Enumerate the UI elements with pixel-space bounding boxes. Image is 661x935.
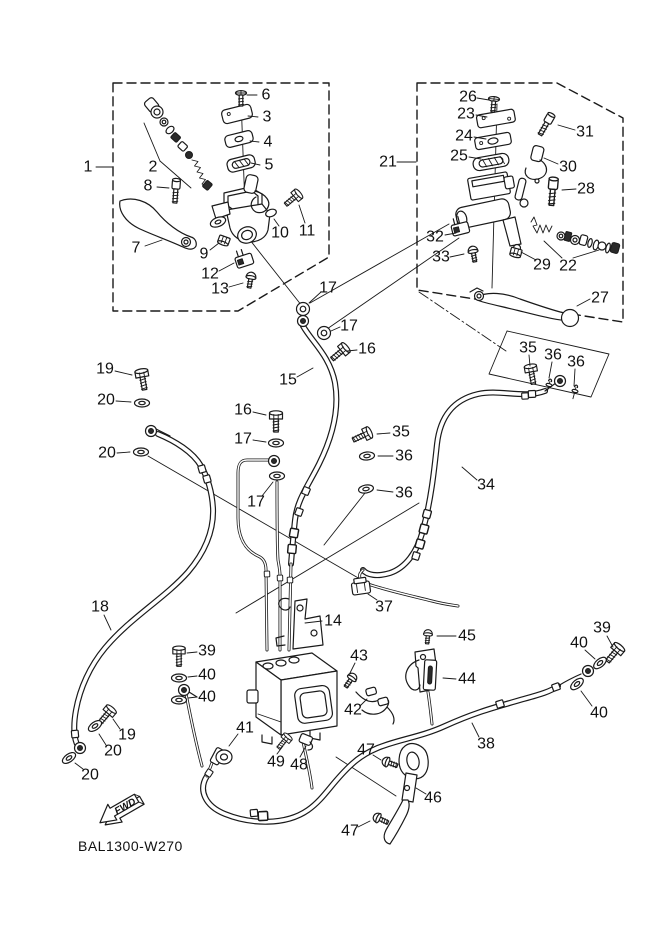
bolt-16-a bbox=[328, 341, 351, 363]
callout-41: 41 bbox=[236, 720, 254, 737]
banjo-hose15-top bbox=[298, 316, 309, 327]
callout-42: 42 bbox=[344, 702, 362, 719]
parts-diagram-page: FWD BAL1300-W270 12345678910111213172122… bbox=[0, 0, 661, 935]
hose-collar bbox=[522, 393, 529, 399]
abs-hydraulic-unit bbox=[247, 653, 337, 744]
callout-19: 19 bbox=[118, 727, 136, 744]
clamp-37 bbox=[351, 577, 371, 595]
callout-35: 35 bbox=[519, 340, 537, 357]
callout-45: 45 bbox=[458, 628, 476, 645]
clamp-30 bbox=[525, 145, 546, 183]
callout-1: 1 bbox=[84, 159, 93, 176]
callout-8: 8 bbox=[144, 178, 153, 195]
banjo-hose18-top bbox=[146, 426, 157, 437]
cap-plate-24 bbox=[474, 132, 512, 150]
leader-line-20 bbox=[117, 452, 130, 453]
washer-20-c bbox=[87, 718, 104, 733]
leader-line-40 bbox=[188, 676, 197, 677]
screw-33 bbox=[467, 245, 480, 262]
banjo-hose18-end bbox=[75, 743, 86, 754]
hose-collar bbox=[264, 571, 270, 577]
leader-line-34 bbox=[462, 467, 477, 480]
leader-line-11 bbox=[299, 205, 305, 223]
screw-43 bbox=[342, 671, 359, 690]
brake-hose-15 bbox=[291, 326, 336, 564]
washer-17-d bbox=[270, 472, 285, 480]
bolt-8 bbox=[171, 178, 181, 203]
hose-collar bbox=[71, 730, 78, 738]
callout-10: 10 bbox=[271, 225, 289, 242]
hose-collar bbox=[277, 575, 283, 581]
callout-24: 24 bbox=[455, 128, 473, 145]
hose-collar bbox=[203, 475, 212, 484]
hose-collar bbox=[198, 465, 207, 474]
washer-20-a bbox=[135, 399, 150, 407]
construction-line bbox=[148, 456, 360, 579]
callout-5: 5 bbox=[265, 157, 274, 174]
callout-40: 40 bbox=[198, 689, 216, 706]
callout-31: 31 bbox=[576, 124, 594, 141]
bracket-46 bbox=[384, 744, 428, 844]
brake-hose-34 bbox=[360, 383, 556, 606]
callout-43: 43 bbox=[350, 648, 368, 665]
banjo-center-pipe bbox=[269, 456, 280, 467]
callout-17: 17 bbox=[247, 494, 265, 511]
callout-16: 16 bbox=[358, 341, 376, 358]
bolt-16-b bbox=[270, 411, 283, 432]
construction-line bbox=[324, 493, 365, 545]
washer-40-b bbox=[172, 696, 187, 704]
leader-line-35 bbox=[377, 433, 390, 434]
hose-collar bbox=[551, 683, 560, 692]
clamp-48 bbox=[299, 733, 313, 750]
callout-9: 9 bbox=[200, 246, 209, 263]
bracket-44 bbox=[406, 649, 437, 724]
callout-11: 11 bbox=[299, 223, 316, 240]
leader-line-15 bbox=[297, 368, 313, 377]
leader-line-19 bbox=[115, 371, 132, 375]
hose-collar bbox=[287, 577, 293, 583]
callout-15: 15 bbox=[279, 372, 297, 389]
hose-collar bbox=[289, 528, 299, 538]
hose-collar bbox=[412, 552, 421, 561]
leader-line-36 bbox=[574, 369, 575, 386]
clamp-41 bbox=[210, 747, 232, 765]
master-cylinder-body-1 bbox=[209, 187, 270, 246]
piston-kit-22 bbox=[531, 217, 620, 254]
hose-collar bbox=[528, 390, 536, 397]
screw-47-b bbox=[372, 811, 391, 827]
cap-plate-4 bbox=[224, 130, 254, 148]
washer-40-a bbox=[172, 674, 187, 682]
leader-line-13 bbox=[229, 283, 243, 287]
hose-collar bbox=[258, 811, 268, 820]
callout-18: 18 bbox=[91, 599, 109, 616]
washer-17-a bbox=[297, 303, 310, 316]
bolt-19-a bbox=[135, 368, 151, 391]
leader-line-31 bbox=[558, 125, 575, 130]
bolt-31 bbox=[537, 112, 556, 137]
callout-37: 37 bbox=[375, 599, 393, 616]
hose-collar bbox=[250, 809, 258, 816]
leader-line-12 bbox=[219, 263, 234, 271]
reservoir-cap-23 bbox=[476, 109, 516, 128]
callout-22: 22 bbox=[559, 258, 577, 275]
callout-2: 2 bbox=[149, 159, 158, 176]
callout-17: 17 bbox=[340, 318, 358, 335]
callout-44: 44 bbox=[458, 671, 476, 688]
callout-17: 17 bbox=[319, 280, 337, 297]
callout-33: 33 bbox=[432, 249, 450, 266]
callout-49: 49 bbox=[267, 754, 285, 771]
leader-line-16 bbox=[253, 412, 266, 415]
bolt-35-b bbox=[350, 426, 373, 446]
callout-3: 3 bbox=[263, 109, 272, 126]
leader-line-36 bbox=[549, 362, 552, 378]
hose-collar bbox=[419, 524, 429, 534]
washer-40-c bbox=[592, 655, 609, 671]
hose-collar bbox=[422, 509, 431, 519]
callout-26: 26 bbox=[459, 89, 477, 106]
callout-48: 48 bbox=[290, 757, 308, 774]
brake-lever-27 bbox=[470, 288, 579, 327]
callout-40: 40 bbox=[570, 635, 588, 652]
reservoir-body-2 bbox=[467, 171, 515, 200]
reservoir-cap-3 bbox=[221, 104, 253, 125]
construction-line bbox=[544, 241, 562, 258]
callout-6: 6 bbox=[262, 87, 271, 104]
leader-line-28 bbox=[562, 189, 576, 190]
banjo-40 bbox=[179, 685, 190, 696]
leader-line-27 bbox=[577, 299, 590, 306]
callout-36: 36 bbox=[395, 485, 413, 502]
callout-29: 29 bbox=[533, 257, 551, 274]
screw-47-a bbox=[381, 756, 399, 771]
washer-20-b bbox=[134, 448, 149, 456]
leader-line-8 bbox=[157, 187, 169, 188]
bolt-39-a bbox=[173, 646, 185, 666]
leader-line-33 bbox=[450, 254, 464, 257]
callout-21: 21 bbox=[379, 154, 397, 171]
leader-line-17 bbox=[253, 440, 266, 442]
brake-hose-18 bbox=[74, 434, 213, 746]
callout-40: 40 bbox=[198, 667, 216, 684]
screw-26 bbox=[487, 96, 499, 112]
screw-13 bbox=[244, 271, 257, 288]
callout-16: 16 bbox=[234, 402, 252, 419]
leader-line-39 bbox=[607, 636, 613, 647]
leader-line-17 bbox=[331, 327, 340, 331]
callout-13: 13 bbox=[211, 281, 229, 298]
part-code: BAL1300-W270 bbox=[78, 838, 183, 854]
leader-line-44 bbox=[443, 678, 456, 679]
bolt-49 bbox=[274, 732, 293, 752]
hose-collar bbox=[295, 507, 304, 516]
leader-line-40 bbox=[188, 697, 197, 698]
screw-6 bbox=[236, 91, 247, 106]
bolt-35-a bbox=[524, 363, 540, 385]
callout-35: 35 bbox=[392, 424, 410, 441]
bracket-14 bbox=[276, 598, 323, 649]
leader-line-18 bbox=[104, 615, 111, 630]
callout-20: 20 bbox=[98, 445, 116, 462]
leader-line-30 bbox=[544, 158, 558, 164]
washer-36-d bbox=[358, 484, 374, 494]
hose-collar bbox=[288, 544, 297, 553]
bolt-28 bbox=[547, 177, 559, 206]
callout-38: 38 bbox=[477, 736, 495, 753]
callout-27: 27 bbox=[591, 290, 609, 307]
callout-19: 19 bbox=[96, 361, 114, 378]
callout-20: 20 bbox=[81, 767, 99, 784]
diaphragm-25 bbox=[472, 152, 510, 171]
washer-36-c bbox=[359, 451, 375, 460]
leader-line-9 bbox=[210, 243, 219, 250]
banjo-hose34-top bbox=[555, 376, 566, 387]
bolt-11 bbox=[282, 188, 304, 209]
fwd-arrow: FWD bbox=[94, 789, 146, 832]
callout-20: 20 bbox=[97, 392, 115, 409]
callout-40: 40 bbox=[590, 705, 608, 722]
banjo-hose38-end bbox=[583, 666, 594, 677]
callout-36: 36 bbox=[395, 448, 413, 465]
construction-line bbox=[144, 123, 160, 161]
hose-collar bbox=[496, 700, 505, 709]
callout-28: 28 bbox=[577, 181, 595, 198]
exploded-parts-diagram: FWD BAL1300-W270 12345678910111213172122… bbox=[0, 0, 661, 935]
construction-line bbox=[246, 235, 302, 306]
callout-34: 34 bbox=[477, 477, 495, 494]
leader-line-36 bbox=[377, 490, 393, 492]
callout-20: 20 bbox=[104, 743, 122, 760]
callout-47: 47 bbox=[341, 823, 359, 840]
callout-25: 25 bbox=[450, 148, 468, 165]
leader-line-39 bbox=[187, 652, 197, 653]
callout-17: 17 bbox=[234, 431, 252, 448]
callout-36: 36 bbox=[544, 347, 562, 364]
washer-17-c bbox=[269, 439, 284, 447]
callout-36: 36 bbox=[567, 354, 585, 371]
callout-7: 7 bbox=[132, 240, 141, 257]
callout-39: 39 bbox=[198, 643, 216, 660]
switch-connector-12 bbox=[233, 247, 254, 268]
leader-line-26 bbox=[477, 98, 489, 100]
callout-32: 32 bbox=[426, 229, 444, 246]
callout-23: 23 bbox=[457, 106, 475, 123]
leader-line-7 bbox=[145, 240, 162, 246]
diagram-artwork: FWD BAL1300-W270 bbox=[74, 97, 620, 854]
callout-4: 4 bbox=[264, 134, 273, 151]
nut-9 bbox=[217, 235, 230, 247]
callout-39: 39 bbox=[593, 620, 611, 637]
hose-collar bbox=[415, 539, 425, 550]
callout-46: 46 bbox=[424, 790, 442, 807]
leader-line-20 bbox=[116, 401, 131, 402]
callout-47: 47 bbox=[357, 742, 375, 759]
washer-17-b bbox=[318, 327, 331, 340]
bolt-45 bbox=[423, 629, 433, 644]
pin-36-b bbox=[570, 384, 579, 399]
leader-line-47 bbox=[358, 821, 370, 827]
leader-line-43 bbox=[350, 663, 355, 673]
callout-30: 30 bbox=[559, 159, 577, 176]
callout-14: 14 bbox=[324, 613, 342, 630]
callouts: 1234567891011121317212223242526272829303… bbox=[75, 87, 613, 840]
